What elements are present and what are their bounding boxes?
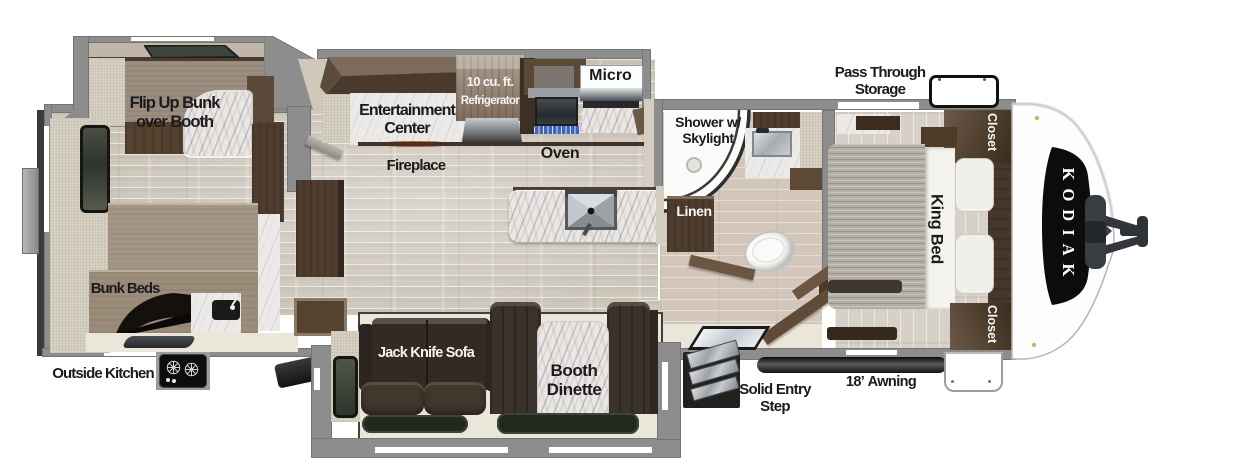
svg-text:KODIAK: KODIAK (1059, 168, 1078, 285)
